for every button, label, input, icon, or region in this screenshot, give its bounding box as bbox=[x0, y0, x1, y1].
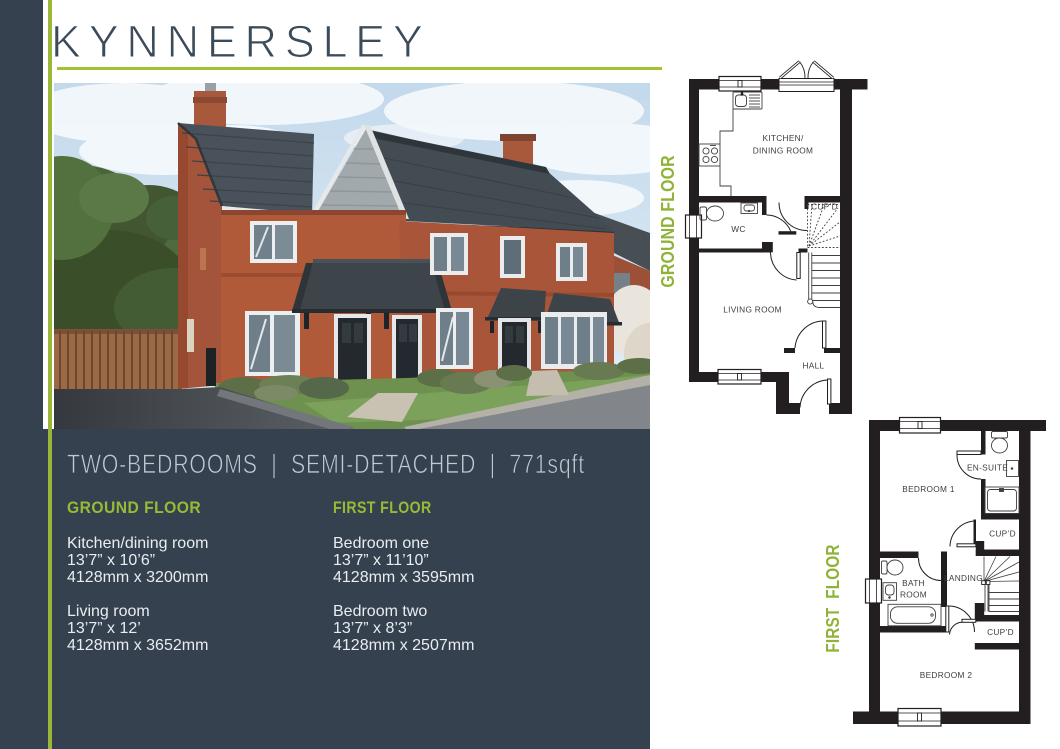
svg-text:DINING ROOM: DINING ROOM bbox=[753, 146, 813, 156]
svg-text:HALL: HALL bbox=[803, 361, 825, 371]
svg-text:KITCHEN/: KITCHEN/ bbox=[762, 133, 804, 143]
svg-text:BEDROOM 1: BEDROOM 1 bbox=[902, 484, 955, 494]
svg-text:WC: WC bbox=[731, 224, 745, 234]
svg-text:LIVING ROOM: LIVING ROOM bbox=[723, 305, 782, 315]
svg-text:LANDING: LANDING bbox=[944, 573, 983, 583]
svg-text:ROOM: ROOM bbox=[900, 590, 927, 600]
svg-text:CUP’D: CUP’D bbox=[989, 529, 1016, 539]
svg-text:BATH: BATH bbox=[902, 578, 925, 588]
svg-text:CUP’D: CUP’D bbox=[811, 202, 838, 212]
svg-text:BEDROOM 2: BEDROOM 2 bbox=[920, 670, 973, 680]
svg-text:EN-SUITE: EN-SUITE bbox=[967, 463, 1008, 473]
svg-text:CUP’D: CUP’D bbox=[987, 627, 1014, 637]
